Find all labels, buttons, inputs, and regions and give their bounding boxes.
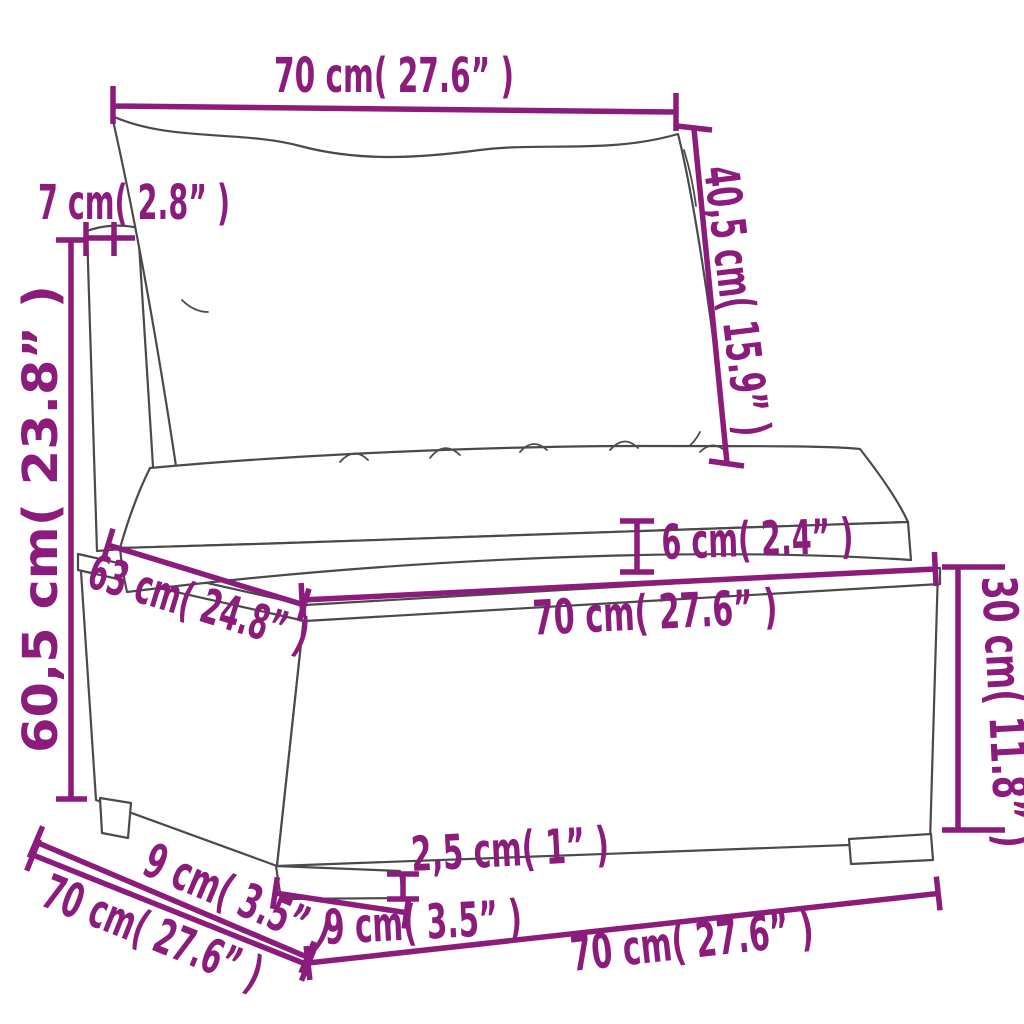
dim-base-height: 30 cm( 11.8” ) [942, 567, 1024, 849]
dim-label-seat-cushion-thickness: 6 cm( 2.4” ) [660, 508, 854, 571]
diagram-canvas: 70 cm( 27.6” ) 40,5 cm( 15.9” ) 7 cm( 2.… [0, 0, 1024, 1024]
sofa-back-cushion [112, 116, 727, 467]
dim-label-leg-width: 9 cm( 3.5” ) [323, 890, 524, 956]
dim-label-width-total-bottom: 70 cm( 27.6” ) [568, 901, 817, 983]
dim-label-total-height: 60,5 cm( 23.8” ) [13, 285, 69, 753]
dim-label-seat-width: 70 cm( 27.6” ) [531, 579, 778, 647]
dim-label-base-height: 30 cm( 11.8” ) [970, 575, 1024, 850]
dim-total-height: 60,5 cm( 23.8” ) [13, 240, 87, 799]
dim-label-back-width-top: 70 cm( 27.6” ) [274, 48, 514, 104]
dim-leg-height: 2,5 cm( 1” ) [387, 817, 610, 899]
dim-label-leg-height: 2,5 cm( 1” ) [410, 817, 611, 883]
sofa-illustration [78, 116, 940, 899]
sofa-leg-back-left [100, 798, 131, 838]
sofa-leg-front-right [849, 834, 933, 864]
dim-back-width-top: 70 cm( 27.6” ) [113, 48, 676, 131]
dim-label-back-panel-thickness: 7 cm( 2.8” ) [38, 175, 230, 231]
